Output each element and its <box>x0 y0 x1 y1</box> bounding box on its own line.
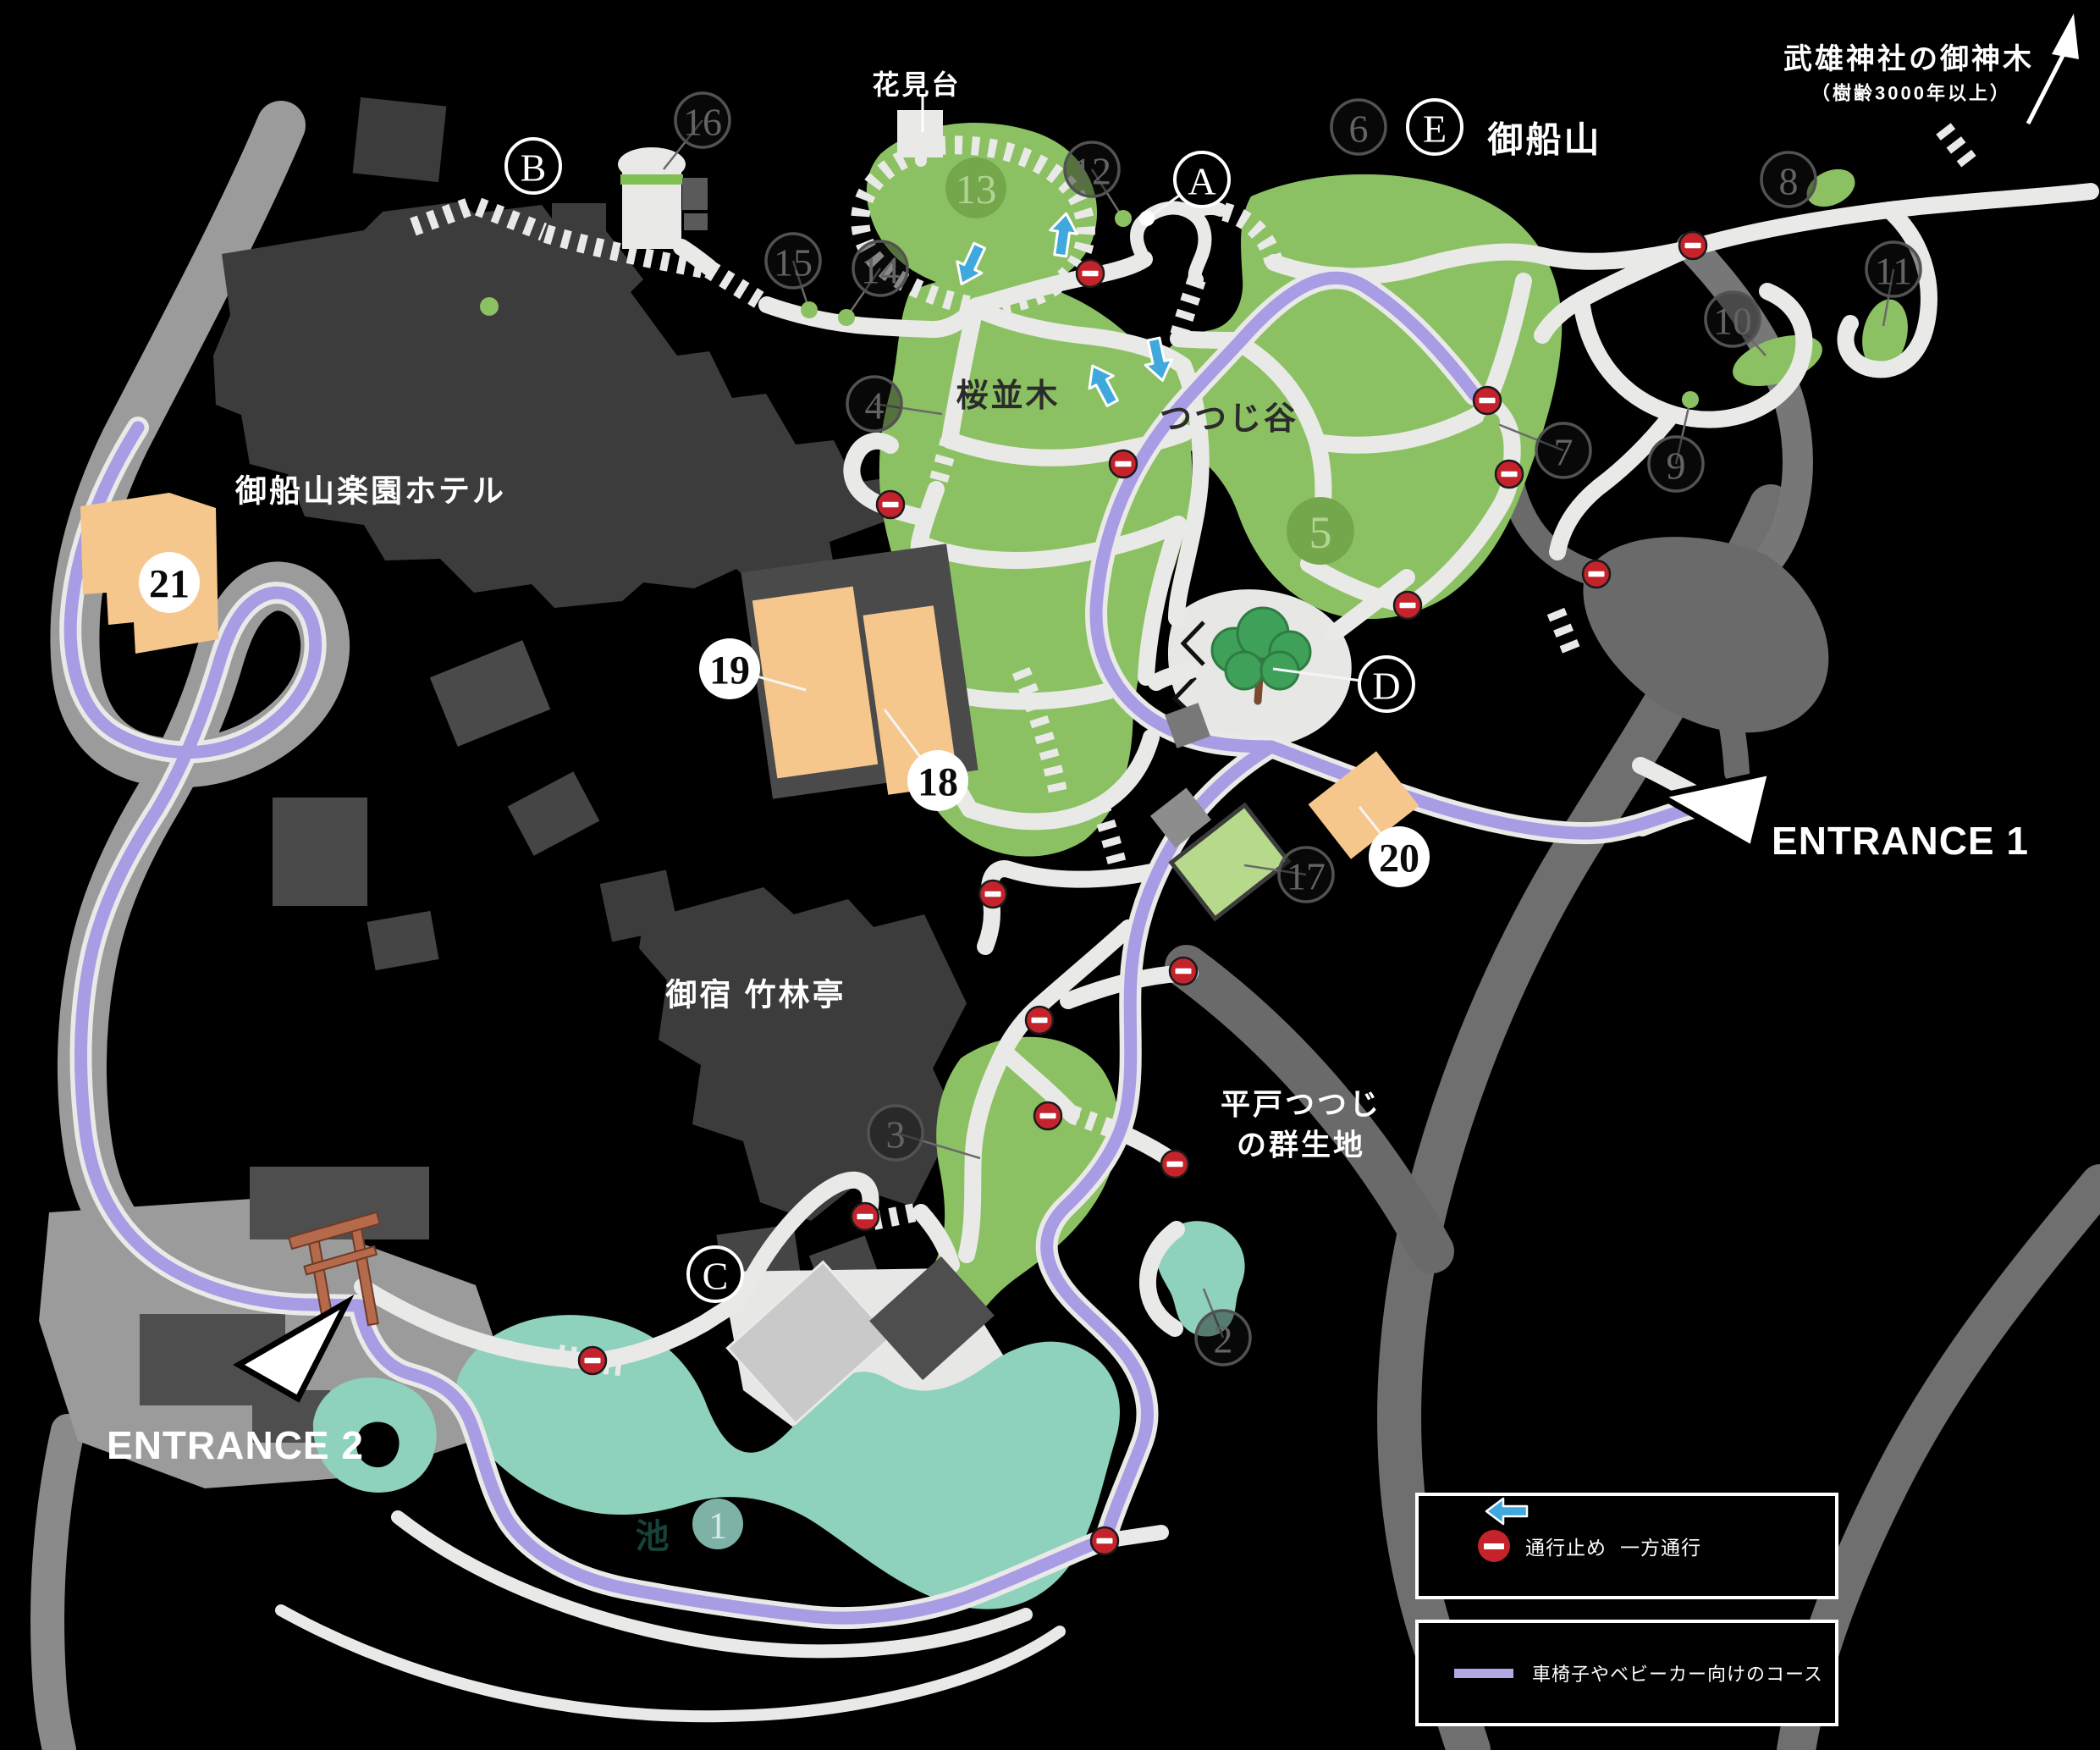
hanamidai-platform <box>897 110 943 157</box>
svg-text:15: 15 <box>774 241 813 284</box>
svg-text:2: 2 <box>1214 1318 1233 1361</box>
marker-8: 8 <box>1761 152 1816 207</box>
marker-A-target-dot <box>1139 211 1155 226</box>
no-entry-sign <box>579 1347 606 1374</box>
marker-12-target-dot <box>1115 210 1132 227</box>
label-shrine-note-1: 武雄神社の御神木 <box>1783 43 2034 75</box>
no-entry-sign <box>1034 1102 1061 1129</box>
marker-2: 2 <box>1196 1311 1250 1365</box>
no-entry-sign <box>1077 260 1104 287</box>
no-entry-sign <box>1679 232 1706 259</box>
svg-text:19: 19 <box>709 649 750 693</box>
marker-E: E <box>1408 100 1462 154</box>
no-entry-sign <box>1161 1151 1188 1178</box>
no-entry-sign <box>877 491 904 518</box>
marker-13: 13 <box>945 157 1006 218</box>
svg-text:E: E <box>1423 108 1447 151</box>
marker-17: 17 <box>1279 847 1333 902</box>
marker-A: A <box>1175 152 1229 207</box>
accessible-route-legend-label: 車椅子やベビーカー向けのコース <box>1532 1659 1823 1687</box>
label-mifuneyama: 御船山 <box>1486 120 1601 160</box>
label-pond-label: 池 <box>636 1518 672 1555</box>
no-entry-sign <box>1091 1527 1118 1554</box>
marker-16: 16 <box>675 93 730 147</box>
marker-7-target-dot <box>1483 413 1500 430</box>
marker-3: 3 <box>868 1106 923 1160</box>
svg-text:9: 9 <box>1667 444 1686 488</box>
svg-text:5: 5 <box>1309 507 1332 558</box>
no-entry-sign <box>1394 592 1421 619</box>
svg-text:C: C <box>703 1255 729 1298</box>
svg-text:16: 16 <box>683 101 722 144</box>
marker-9-target-dot <box>1682 391 1699 408</box>
one-way-legend-icon <box>1485 1496 1529 1526</box>
svg-text:10: 10 <box>1713 300 1752 343</box>
label-ryokan: 御宿 竹林亭 <box>664 978 846 1013</box>
marker-14: 14 <box>853 241 907 295</box>
label-entrance-2: ENTRANCE 2 <box>107 1423 364 1467</box>
marker-12: 12 <box>1065 142 1119 196</box>
label-entrance-1: ENTRANCE 1 <box>1772 819 2029 863</box>
svg-text:4: 4 <box>865 384 885 428</box>
map-canvas: ABCDE123456789101112131415161718192021 花… <box>0 0 2100 1750</box>
no-entry-sign <box>979 881 1006 908</box>
svg-text:B: B <box>521 146 547 190</box>
marker-9: 9 <box>1649 437 1703 491</box>
svg-text:18: 18 <box>918 760 958 805</box>
label-hirado-azalea-1: 平戸つつじ <box>1221 1089 1381 1122</box>
svg-text:20: 20 <box>1379 836 1419 881</box>
no-entry-sign <box>1496 461 1523 488</box>
marker-21: 21 <box>139 552 200 613</box>
svg-text:21: 21 <box>149 562 190 607</box>
label-hotel: 御船山楽園ホテル <box>234 474 506 509</box>
marker-14-target-dot <box>838 309 855 326</box>
marker-4: 4 <box>847 377 901 431</box>
svg-text:3: 3 <box>886 1113 906 1157</box>
legend-box-signs: 通行止め 一方通行 <box>1415 1493 1838 1599</box>
marker-1: 1 <box>692 1499 743 1549</box>
marker-20: 20 <box>1369 826 1430 887</box>
legend-box-route: 車椅子やベビーカー向けのコース <box>1415 1620 1838 1726</box>
accessible-route-legend-swatch <box>1454 1669 1513 1678</box>
no-entry-sign <box>1583 560 1610 588</box>
svg-text:6: 6 <box>1349 108 1369 151</box>
one-way-legend-label: 一方通行 <box>1620 1532 1701 1560</box>
svg-text:D: D <box>1372 665 1400 708</box>
label-tsutsuji-dani: つつじ谷 <box>1160 401 1298 437</box>
marker-B: B <box>506 139 560 193</box>
ryokan-building <box>639 887 967 1221</box>
park-map: ABCDE123456789101112131415161718192021 花… <box>0 0 2100 1750</box>
svg-text:12: 12 <box>1072 150 1111 193</box>
svg-text:17: 17 <box>1287 855 1326 898</box>
label-hanamidai: 花見台 <box>872 69 961 100</box>
svg-text:11: 11 <box>1875 250 1912 293</box>
no-entry-legend-label: 通行止め <box>1525 1532 1607 1560</box>
marker-5: 5 <box>1287 497 1354 565</box>
shrine-arrow-icon <box>2028 14 2079 124</box>
no-entry-sign <box>1474 387 1501 414</box>
label-sakura-namiki: 桜並木 <box>956 378 1060 414</box>
marker-19: 19 <box>699 638 760 699</box>
svg-text:1: 1 <box>708 1505 727 1547</box>
svg-text:7: 7 <box>1554 431 1574 474</box>
marker-6: 6 <box>1331 100 1386 154</box>
marker-D: D <box>1359 657 1414 711</box>
marker-7: 7 <box>1536 423 1590 478</box>
marker-18: 18 <box>907 750 968 811</box>
svg-text:A: A <box>1188 160 1215 203</box>
no-entry-sign <box>852 1203 879 1230</box>
no-entry-sign <box>1170 958 1197 985</box>
marker-15-target-dot <box>801 301 818 318</box>
no-entry-sign <box>1026 1007 1053 1034</box>
marker-C: C <box>688 1247 742 1301</box>
svg-text:8: 8 <box>1779 160 1799 203</box>
label-hirado-azalea-2: の群生地 <box>1237 1129 1365 1162</box>
svg-text:14: 14 <box>861 249 900 292</box>
no-entry-sign <box>1110 450 1137 478</box>
svg-text:13: 13 <box>956 167 997 213</box>
no-entry-legend-icon <box>1478 1530 1510 1562</box>
marker-15: 15 <box>766 234 820 288</box>
marker-11: 11 <box>1866 242 1921 296</box>
label-shrine-note-2: （樹齢3000年以上） <box>1811 83 2011 104</box>
marker-10: 10 <box>1706 292 1760 346</box>
